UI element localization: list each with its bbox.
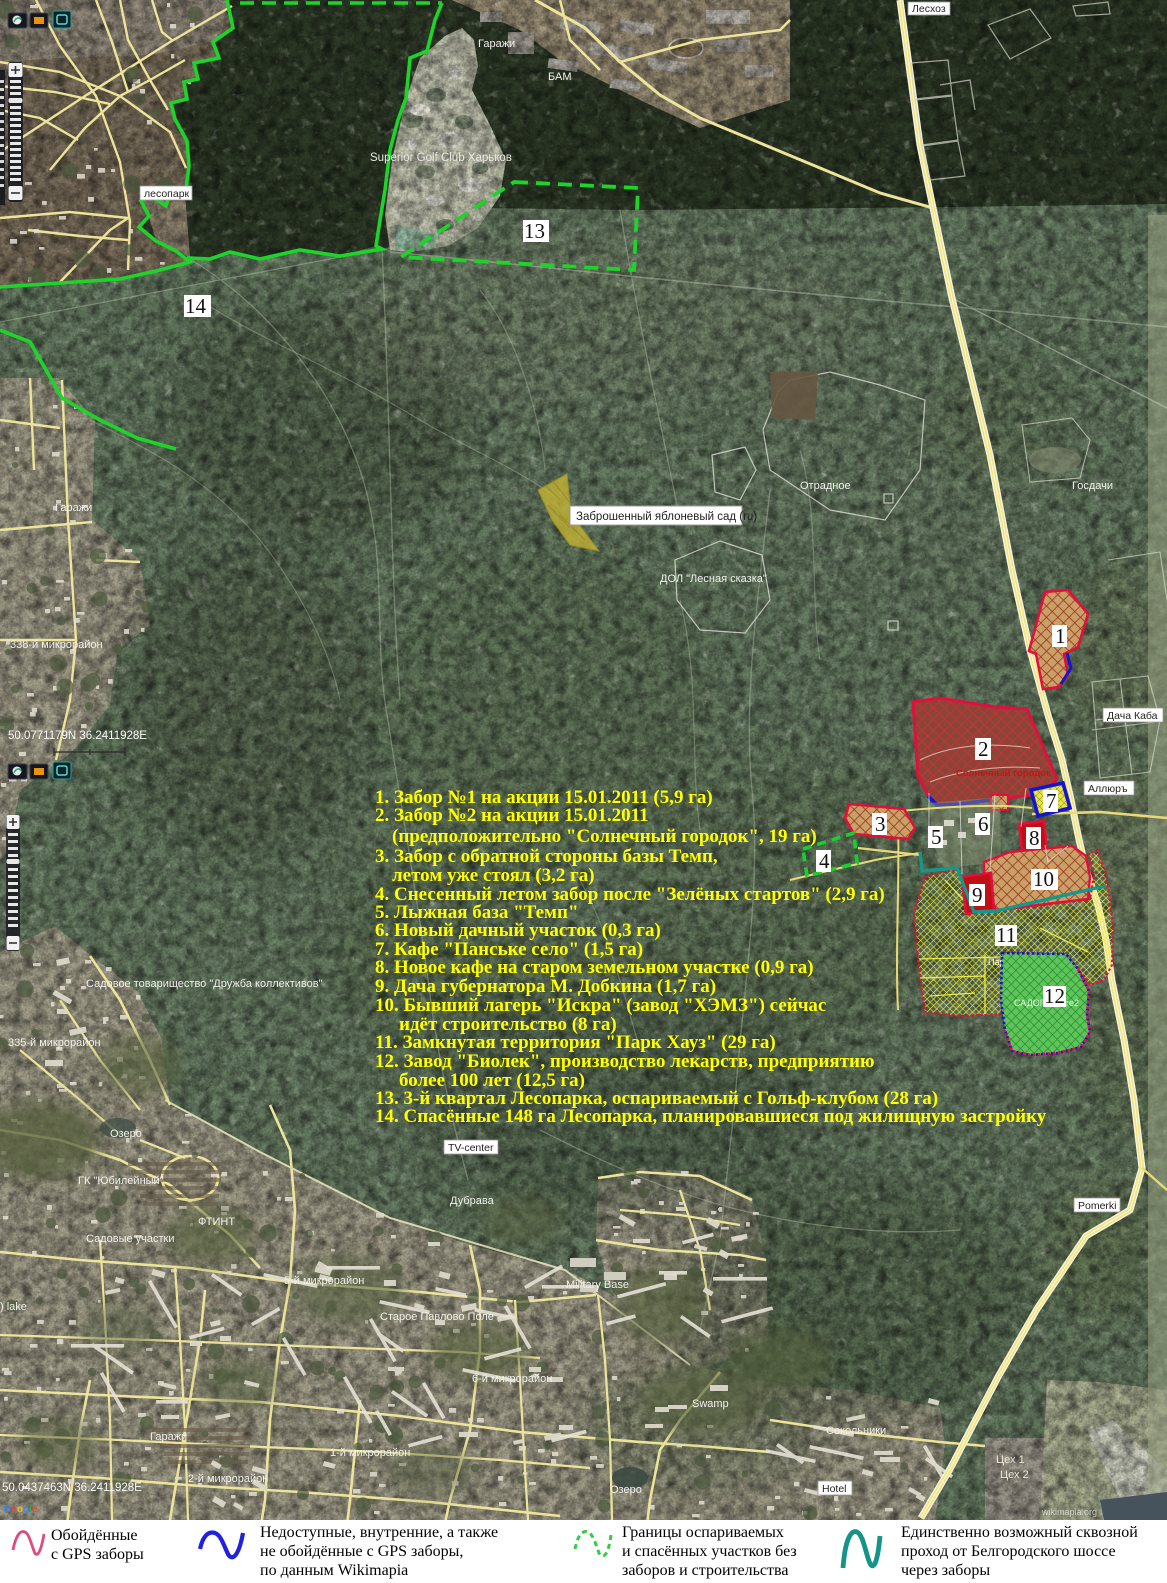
- svg-text:5: 5: [931, 825, 942, 849]
- svg-text:8. Новое кафе на старом земел: 8. Новое кафе на старом земельном участк…: [375, 957, 814, 978]
- svg-text:9: 9: [972, 883, 983, 907]
- svg-text:Недоступные, внутренние, а так: Недоступные, внутренние, а также: [260, 1524, 498, 1541]
- svg-text:4: 4: [819, 849, 830, 873]
- svg-text:Цех 1: Цех 1: [996, 1454, 1025, 1466]
- svg-text:1: 1: [1055, 624, 1066, 648]
- svg-text:Отрадное: Отрадное: [800, 480, 851, 492]
- svg-text:Гаражи: Гаражи: [478, 38, 515, 50]
- svg-text:Госдачи: Госдачи: [1072, 480, 1113, 492]
- svg-text:Гаражи: Гаражи: [150, 1431, 187, 1443]
- svg-text:6. Новый дачный участок (0,3: 6. Новый дачный участок (0,3 га): [375, 920, 661, 941]
- svg-text:летом уже стоял (3,2 га): летом уже стоял (3,2 га): [392, 865, 595, 886]
- svg-text:лесопарк: лесопарк: [144, 188, 190, 200]
- svg-text:8: 8: [1029, 826, 1040, 850]
- svg-text:3. Забор с обратной стороны б: 3. Забор с обратной стороны базы Темп,: [375, 846, 718, 867]
- svg-text:Hotel: Hotel: [822, 1483, 847, 1495]
- svg-text:7: 7: [1046, 789, 1057, 813]
- svg-text:Military Base: Military Base: [566, 1279, 629, 1291]
- svg-text:Заброшенный яблоневый сад (ru): Заброшенный яблоневый сад (ru): [576, 511, 757, 523]
- svg-text:Цех 2: Цех 2: [1000, 1469, 1029, 1481]
- svg-text:Лесхоз: Лесхоз: [912, 3, 946, 15]
- svg-text:Садовые участки: Садовые участки: [86, 1233, 175, 1245]
- svg-text:2: 2: [978, 737, 989, 761]
- svg-text:Озеро: Озеро: [610, 1484, 642, 1496]
- svg-text:12: 12: [1044, 984, 1065, 1008]
- svg-text:11: 11: [996, 923, 1016, 947]
- svg-text:14: 14: [185, 294, 207, 318]
- svg-text:50.0771179N 36.2411928E: 50.0771179N 36.2411928E: [8, 730, 147, 742]
- svg-text:Единственно возможный сквозной: Единственно возможный сквозной: [901, 1524, 1138, 1541]
- svg-text:Дача Каба: Дача Каба: [1107, 710, 1158, 722]
- svg-text:ДОЛ "Лесная сказка": ДОЛ "Лесная сказка": [660, 573, 767, 585]
- svg-text:9. Дача губернатора М. Добк: 9. Дача губернатора М. Добкина (1,7 га): [375, 976, 716, 997]
- svg-text:ФТИНТ: ФТИНТ: [198, 1216, 235, 1228]
- svg-text:и спасённых участков без: и спасённых участков без: [622, 1543, 797, 1560]
- svg-text:ГК "Юбилейный": ГК "Юбилейный": [78, 1175, 164, 1187]
- svg-text:Обойдённые: Обойдённые: [51, 1527, 137, 1544]
- svg-text:14. Спасённые 148 га Лесопарка: 14. Спасённые 148 га Лесопарка, планиров…: [375, 1106, 1047, 1127]
- svg-text:заборов и строительства: заборов и строительства: [622, 1562, 788, 1579]
- svg-text:Солнечный городок: Солнечный городок: [956, 768, 1051, 779]
- svg-text:338-й микрорайон: 338-й микрорайон: [10, 639, 103, 651]
- svg-text:12. Завод "Биолек", производст: 12. Завод "Биолек", производство лекарст…: [375, 1051, 875, 1072]
- svg-text:2-й микрорайон: 2-й микрорайон: [188, 1473, 268, 1485]
- svg-text:с GPS заборы: с GPS заборы: [51, 1546, 144, 1563]
- svg-text:проход от Белгородского шоссе: проход от Белгородского шоссе: [901, 1543, 1116, 1560]
- svg-text:10. Бывший лагерь "Искра" (зав: 10. Бывший лагерь "Искра" (завод "ХЭМЗ")…: [375, 995, 826, 1016]
- svg-text:Озеро: Озеро: [110, 1128, 142, 1140]
- svg-text:Аллюръ: Аллюръ: [1088, 783, 1128, 795]
- svg-text:Сокольники: Сокольники: [826, 1425, 886, 1437]
- svg-text:(предположительно "Солнечный г: (предположительно "Солнечный городок", 1…: [392, 826, 817, 847]
- svg-text:6-й микрорайон: 6-й микрорайон: [472, 1373, 552, 1385]
- svg-text:Гаражи: Гаражи: [55, 502, 92, 514]
- svg-text:5-й микрорайон: 5-й микрорайон: [284, 1275, 364, 1287]
- svg-text:2. Забор №2 на акции 15.01.20: 2. Забор №2 на акции 15.01.2011: [375, 805, 649, 826]
- svg-text:Google: Google: [3, 1504, 38, 1515]
- svg-text:не обойдённые с GPS заборы,: не обойдённые с GPS заборы,: [260, 1543, 463, 1560]
- svg-text:по данным Wikimapia: по данным Wikimapia: [260, 1562, 408, 1579]
- svg-text:Старое Павлово Поле: Старое Павлово Поле: [380, 1311, 494, 1323]
- svg-text:Pomerki: Pomerki: [1078, 1200, 1117, 1212]
- svg-text:Границы оспариваемых: Границы оспариваемых: [622, 1524, 784, 1541]
- svg-text:Superior Golf Club Харьков: Superior Golf Club Харьков: [370, 152, 512, 164]
- svg-text:10: 10: [1033, 867, 1054, 891]
- svg-text:Садовое товарищество "Дружба к: Садовое товарищество "Дружба коллективов…: [86, 978, 323, 990]
- svg-text:13: 13: [524, 219, 545, 243]
- svg-text:через заборы: через заборы: [901, 1562, 990, 1579]
- svg-text:Дубрава: Дубрава: [450, 1195, 495, 1207]
- svg-text:1-й микрорайон: 1-й микрорайон: [330, 1447, 410, 1459]
- svg-text:) lake: ) lake: [0, 1301, 27, 1313]
- svg-text:11. Замкнутая территория "Пар: 11. Замкнутая территория "Парк Хауз" (29…: [375, 1032, 776, 1053]
- svg-text:wikimapia.org: wikimapia.org: [1041, 1507, 1097, 1517]
- svg-text:БАМ: БАМ: [548, 71, 571, 83]
- svg-text:6: 6: [978, 812, 989, 836]
- svg-text:Swamp: Swamp: [692, 1398, 729, 1410]
- svg-text:335-й микрорайон: 335-й микрорайон: [8, 1037, 101, 1049]
- svg-text:TV-center: TV-center: [448, 1142, 494, 1154]
- svg-text:3: 3: [875, 812, 886, 836]
- svg-text:50.0437463N 36.2411928E: 50.0437463N 36.2411928E: [2, 1482, 142, 1494]
